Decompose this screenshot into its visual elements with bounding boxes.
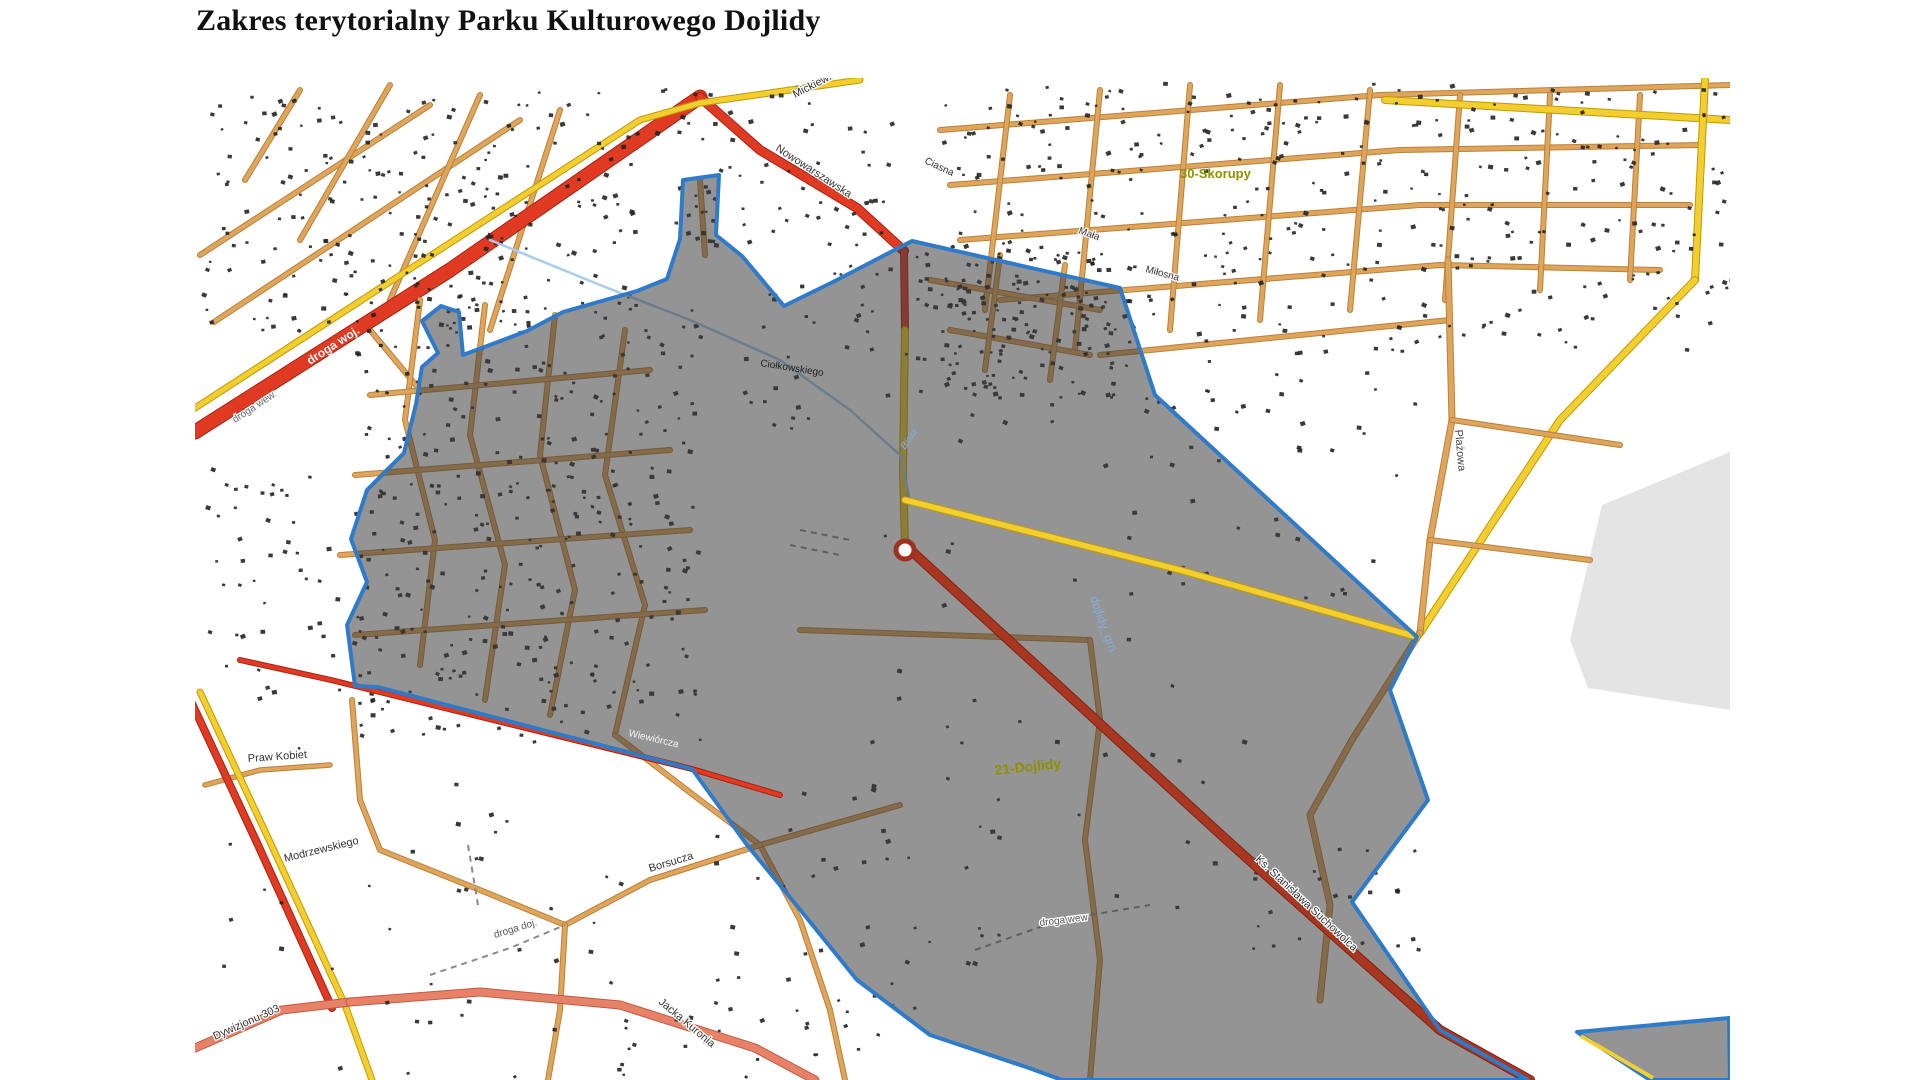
building-dot (373, 123, 378, 127)
document-page: Zakres terytorialny Parku Kulturowego Do… (0, 0, 1920, 1080)
building-dot (1632, 274, 1635, 276)
building-dot (1713, 92, 1718, 96)
building-dot (1363, 432, 1366, 435)
building-dot (987, 155, 991, 159)
building-dot (1139, 153, 1143, 157)
building-dot (1130, 148, 1133, 151)
building-dot (367, 329, 372, 333)
park-map-svg: droga woj.droga wew.NowowarszawskaMickie… (195, 78, 1730, 1080)
building-dot (1465, 125, 1470, 129)
building-dot (291, 215, 296, 219)
building-dot (626, 135, 631, 139)
building-dot (413, 277, 416, 280)
building-dot (613, 241, 616, 244)
building-dot (1259, 258, 1262, 261)
building-dot (281, 103, 286, 107)
building-dot (349, 274, 353, 277)
building-dot (633, 230, 638, 235)
building-dot (741, 207, 744, 210)
building-dot (1234, 282, 1237, 285)
building-dot (262, 111, 267, 115)
building-dot (1374, 199, 1377, 202)
building-dot (360, 198, 363, 201)
building-dot (1006, 248, 1011, 253)
building-dot (1365, 371, 1369, 375)
building-dot (1725, 286, 1728, 289)
building-dot (1322, 335, 1325, 338)
building-dot (553, 142, 557, 145)
building-dot (622, 1074, 625, 1076)
building-dot (279, 946, 285, 951)
building-dot (1094, 212, 1097, 215)
building-dot (770, 94, 775, 98)
building-dot (286, 540, 291, 544)
building-dot (331, 654, 335, 658)
building-dot (309, 245, 312, 248)
building-dot (1304, 116, 1308, 120)
building-dot (371, 259, 375, 262)
building-dot (1341, 152, 1344, 155)
building-dot (423, 239, 427, 243)
building-dot (519, 733, 523, 736)
building-dot (1514, 136, 1519, 140)
building-dot (443, 728, 447, 731)
building-dot (1632, 221, 1637, 225)
page-title: Zakres terytorialny Parku Kulturowego Do… (196, 4, 821, 38)
building-dot (1241, 314, 1246, 319)
building-dot (494, 831, 497, 834)
building-dot (1282, 122, 1285, 125)
building-dot (1591, 317, 1595, 320)
building-dot (1608, 98, 1611, 101)
building-dot (512, 309, 517, 313)
building-dot (1369, 278, 1373, 282)
building-dot (317, 621, 322, 625)
building-dot (505, 820, 508, 823)
building-dot (1059, 177, 1062, 180)
building-dot (467, 325, 472, 329)
map-label: 30-Skorupy (1180, 166, 1252, 181)
building-dot (760, 181, 763, 184)
building-dot (1233, 206, 1237, 209)
building-dot (326, 547, 331, 552)
building-dot (1712, 180, 1717, 184)
building-dot (1059, 105, 1064, 109)
building-dot (1581, 101, 1584, 103)
building-dot (1065, 126, 1070, 130)
building-dot (1489, 321, 1493, 324)
building-dot (325, 162, 328, 165)
building-dot (528, 223, 532, 227)
building-dot (833, 272, 836, 275)
building-dot (380, 329, 383, 332)
building-dot (1039, 246, 1043, 250)
building-dot (525, 310, 529, 313)
building-dot (591, 199, 594, 202)
building-dot (415, 1019, 420, 1023)
building-dot (225, 665, 228, 668)
building-dot (331, 967, 334, 970)
building-dot (1267, 121, 1271, 125)
building-dot (1362, 162, 1366, 165)
building-dot (1029, 258, 1033, 262)
building-dot (1439, 244, 1442, 247)
building-dot (278, 127, 282, 131)
building-dot (1435, 119, 1438, 122)
building-dot (474, 308, 479, 313)
building-dot (1651, 152, 1655, 156)
building-dot (292, 521, 295, 524)
building-dot (235, 633, 238, 636)
building-dot (1412, 124, 1416, 127)
building-dot (629, 163, 633, 166)
building-dot (234, 487, 238, 491)
building-dot (1424, 173, 1428, 177)
building-dot (1592, 160, 1596, 164)
building-dot (1317, 116, 1321, 120)
building-dot (1192, 282, 1197, 286)
building-dot (1371, 559, 1376, 563)
building-dot (1368, 890, 1372, 894)
building-dot (1374, 347, 1379, 351)
building-dot (1623, 158, 1626, 161)
building-dot (1097, 268, 1102, 272)
building-dot (1669, 192, 1672, 195)
building-dot (349, 160, 354, 164)
building-dot (577, 200, 580, 203)
building-dot (1057, 164, 1062, 168)
building-dot (261, 491, 265, 494)
building-dot (819, 948, 824, 952)
building-dot (1454, 254, 1459, 258)
building-dot (601, 147, 604, 150)
building-dot (617, 1068, 621, 1072)
building-dot (299, 569, 303, 573)
building-dot (1418, 94, 1423, 99)
building-dot (1255, 188, 1258, 191)
building-dot (445, 193, 449, 196)
building-dot (1573, 187, 1577, 191)
building-dot (425, 184, 428, 187)
building-dot (417, 306, 421, 309)
building-dot (1682, 128, 1687, 133)
building-dot (206, 309, 209, 311)
building-dot (683, 1045, 687, 1048)
building-dot (598, 92, 601, 94)
building-dot (1455, 266, 1459, 269)
building-dot (1654, 140, 1659, 145)
building-dot (1488, 164, 1494, 169)
building-dot (1513, 93, 1518, 97)
building-dot (305, 578, 308, 581)
building-dot (552, 1028, 557, 1032)
building-dot (365, 141, 369, 145)
building-dot (245, 241, 248, 244)
building-dot (240, 559, 245, 563)
building-dot (1207, 138, 1211, 142)
building-dot (371, 713, 376, 717)
building-dot (375, 171, 380, 176)
building-dot (857, 1048, 860, 1051)
building-dot (323, 154, 327, 158)
building-dot (1397, 89, 1400, 92)
building-dot (304, 169, 308, 172)
building-dot (713, 122, 718, 126)
building-dot (687, 122, 690, 125)
building-dot (493, 145, 496, 148)
building-dot (526, 165, 529, 168)
building-dot (1450, 226, 1455, 231)
building-dot (1541, 129, 1545, 132)
building-dot (365, 433, 369, 436)
building-dot (271, 324, 276, 328)
building-dot (756, 1058, 760, 1061)
building-dot (495, 192, 499, 195)
building-dot (365, 131, 370, 135)
building-dot (288, 147, 292, 151)
building-dot (1464, 194, 1468, 198)
building-dot (1530, 241, 1534, 244)
building-dot (1001, 158, 1005, 161)
building-dot (808, 102, 811, 105)
building-dot (1222, 233, 1225, 235)
building-dot (715, 835, 719, 839)
building-dot (1186, 110, 1189, 113)
building-dot (416, 215, 421, 219)
building-dot (701, 138, 704, 141)
building-dot (1470, 257, 1474, 260)
building-dot (268, 553, 273, 557)
building-dot (547, 279, 550, 282)
building-dot (1565, 341, 1568, 343)
building-dot (1121, 107, 1124, 110)
building-dot (321, 306, 326, 310)
building-dot (1287, 305, 1292, 309)
building-dot (425, 205, 429, 208)
building-dot (1632, 278, 1635, 280)
building-dot (1436, 99, 1439, 102)
building-dot (511, 258, 514, 261)
building-dot (398, 191, 401, 193)
building-dot (491, 207, 495, 210)
building-dot (355, 351, 360, 355)
building-dot (1466, 218, 1470, 221)
building-dot (1689, 247, 1694, 251)
building-dot (476, 167, 480, 170)
building-dot (453, 141, 457, 145)
building-dot (1106, 268, 1111, 272)
building-dot (273, 132, 277, 136)
building-dot (1482, 326, 1485, 329)
building-dot (739, 175, 742, 177)
building-dot (379, 344, 383, 348)
building-dot (399, 172, 403, 176)
building-dot (621, 144, 626, 149)
building-dot (593, 922, 596, 924)
building-dot (1204, 254, 1207, 257)
building-dot (1279, 392, 1284, 397)
building-dot (1331, 253, 1334, 256)
building-dot (1400, 350, 1404, 353)
building-dot (321, 635, 325, 639)
building-dot (430, 983, 433, 985)
building-dot (1638, 230, 1642, 234)
building-dot (964, 136, 967, 139)
building-dot (417, 237, 421, 241)
building-dot (1661, 224, 1665, 227)
building-dot (1719, 243, 1724, 247)
building-dot (803, 952, 807, 956)
building-dot (413, 254, 417, 258)
building-dot (846, 1011, 849, 1014)
building-dot (405, 372, 409, 376)
building-dot (1510, 256, 1515, 261)
building-dot (1278, 323, 1281, 325)
building-dot (317, 118, 322, 122)
building-dot (734, 951, 739, 956)
building-dot (620, 1063, 624, 1067)
building-dot (388, 438, 391, 441)
building-dot (588, 949, 593, 954)
roundabout (896, 541, 914, 559)
building-dot (1343, 114, 1348, 119)
building-dot (1223, 273, 1226, 276)
building-dot (1140, 212, 1143, 215)
building-dot (1157, 134, 1160, 137)
building-dot (1295, 352, 1299, 356)
building-dot (1346, 263, 1349, 266)
building-dot (222, 227, 226, 230)
building-dot (263, 889, 266, 891)
building-dot (597, 142, 601, 145)
building-dot (364, 370, 368, 374)
building-dot (880, 231, 883, 234)
building-dot (1261, 214, 1264, 217)
building-dot (714, 861, 719, 866)
map-canvas: droga woj.droga wew.NowowarszawskaMickie… (195, 78, 1730, 1080)
building-dot (1133, 265, 1137, 268)
building-dot (1574, 346, 1577, 349)
building-dot (693, 93, 697, 97)
building-dot (1242, 305, 1247, 309)
building-dot (228, 843, 232, 846)
building-dot (1322, 191, 1326, 195)
building-dot (1566, 243, 1571, 247)
building-dot (1007, 202, 1010, 205)
building-dot (1315, 121, 1318, 124)
building-dot (1357, 425, 1362, 430)
building-dot (501, 237, 504, 239)
building-dot (331, 115, 336, 119)
building-dot (467, 999, 472, 1003)
building-dot (428, 1021, 432, 1025)
building-dot (861, 151, 865, 154)
building-dot (1486, 260, 1489, 263)
building-dot (379, 133, 382, 136)
building-dot (335, 597, 340, 602)
building-dot (225, 232, 229, 235)
building-dot (1007, 104, 1013, 109)
building-dot (1701, 88, 1706, 92)
building-dot (1214, 427, 1219, 432)
building-dot (454, 783, 458, 787)
building-dot (848, 126, 853, 130)
building-dot (381, 708, 384, 711)
building-dot (1504, 168, 1509, 172)
building-dot (487, 151, 490, 154)
building-dot (260, 630, 265, 634)
building-dot (457, 295, 461, 298)
building-dot (323, 239, 327, 242)
building-dot (373, 195, 377, 199)
building-dot (399, 232, 404, 236)
building-dot (280, 489, 284, 492)
building-dot (1383, 190, 1388, 194)
building-dot (1322, 228, 1325, 231)
building-dot (1077, 251, 1080, 254)
building-dot (1469, 264, 1473, 268)
building-dot (1233, 329, 1236, 332)
building-dot (1214, 255, 1217, 257)
building-dot (756, 877, 760, 880)
building-dot (468, 271, 473, 276)
building-dot (1693, 233, 1696, 236)
building-dot (250, 96, 253, 99)
building-dot (1491, 116, 1496, 120)
building-dot (1431, 243, 1436, 247)
building-dot (1463, 204, 1466, 206)
building-dot (504, 174, 509, 178)
building-dot (484, 159, 487, 161)
building-dot (1487, 256, 1491, 260)
building-dot (863, 232, 867, 235)
building-dot (338, 689, 341, 692)
building-dot (800, 285, 804, 289)
building-dot (1134, 142, 1139, 147)
building-dot (278, 217, 281, 220)
building-dot (1675, 241, 1680, 245)
building-dot (218, 104, 222, 108)
building-dot (1269, 237, 1272, 240)
building-dot (388, 264, 391, 267)
building-dot (285, 494, 289, 497)
building-dot (261, 329, 264, 332)
building-dot (525, 247, 528, 250)
building-dot (1021, 229, 1024, 232)
building-dot (449, 285, 452, 288)
building-dot (1633, 149, 1636, 151)
building-dot (1261, 132, 1265, 136)
building-dot (421, 156, 425, 159)
building-dot (1493, 103, 1496, 106)
building-dot (295, 552, 299, 555)
building-dot (1532, 290, 1537, 294)
building-dot (1049, 114, 1053, 117)
building-dot (616, 203, 619, 206)
building-dot (1396, 944, 1400, 948)
building-dot (1163, 82, 1168, 86)
building-dot (1208, 360, 1212, 363)
building-dot (1377, 243, 1382, 248)
building-dot (737, 976, 740, 979)
building-dot (544, 307, 547, 309)
building-dot (1210, 398, 1215, 402)
building-dot (1297, 448, 1302, 453)
building-dot (222, 965, 226, 968)
building-dot (957, 167, 961, 171)
building-dot (343, 180, 347, 183)
building-dot (1505, 234, 1510, 238)
